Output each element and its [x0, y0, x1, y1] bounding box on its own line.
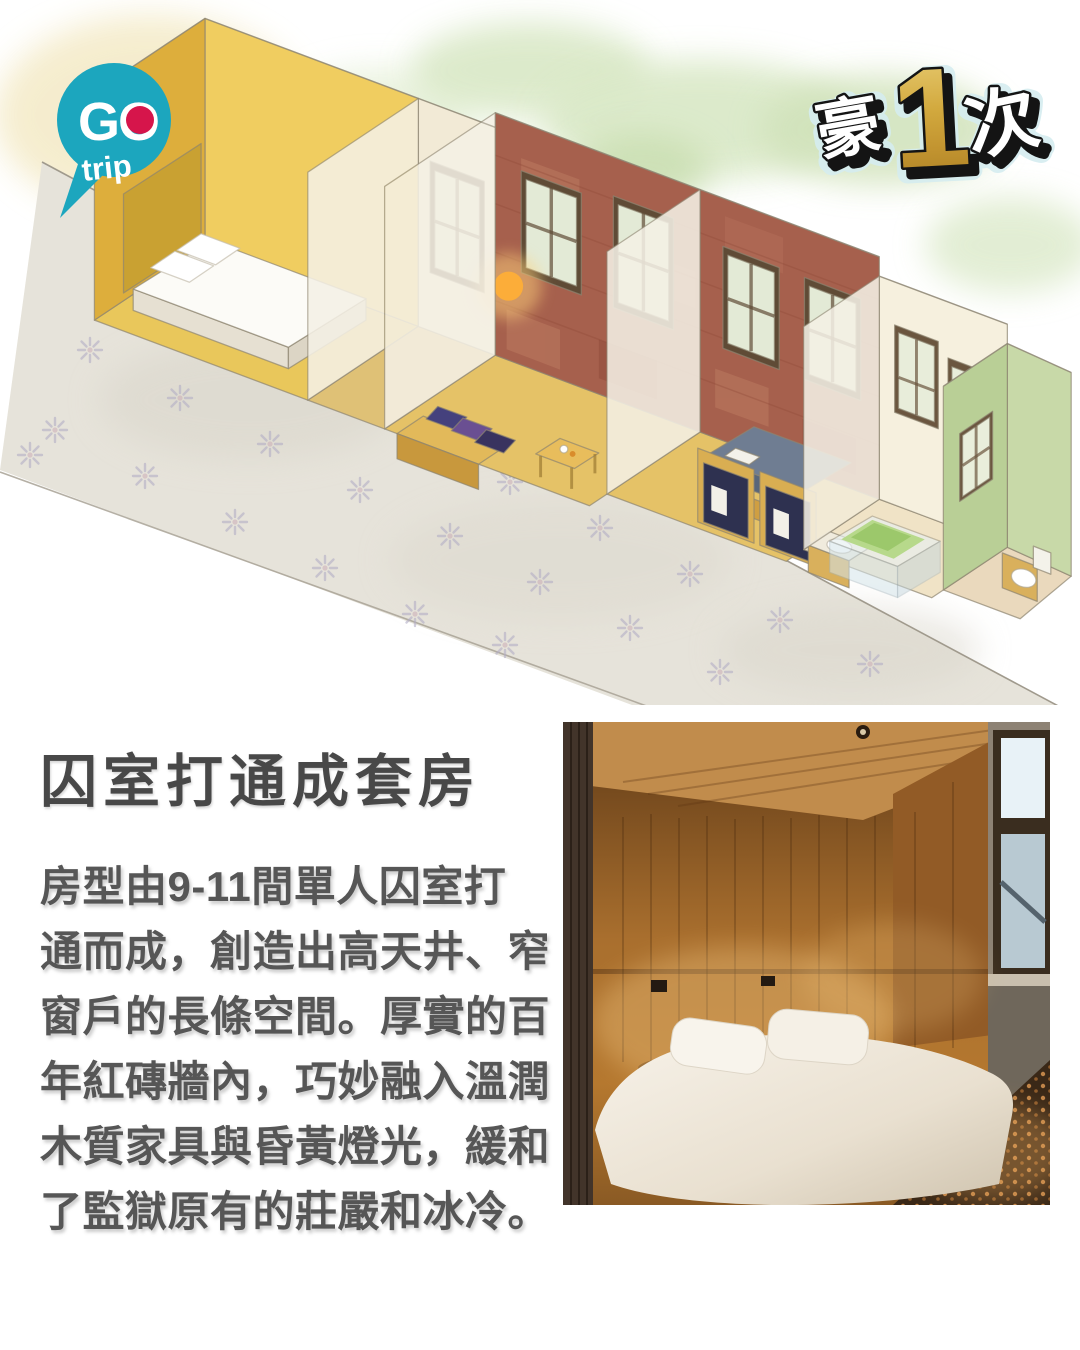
body-text-line: 木質家具與昏黃燈光，緩和: [40, 1114, 560, 1179]
body-text-line: 房型由9-11間單人囚室打: [40, 854, 560, 919]
body-text-line: 窗戶的長條空間。厚實的百: [40, 984, 560, 1049]
photo-pillow: [766, 1008, 870, 1067]
wall-switch: [761, 976, 775, 986]
illustrated-toilet-room: [943, 344, 1071, 619]
hao-1-ci-badge: 豪 1 次 豪 1 次 豪 1 次: [800, 48, 1060, 193]
logo-o-dot: [126, 106, 154, 134]
ceiling-light-inner: [860, 729, 866, 735]
body-text-line: 了監獄原有的莊嚴和冰冷。: [40, 1179, 560, 1244]
article-block: 囚室打通成套房 房型由9-11間單人囚室打 通而成，創造出高天井、窄 窗戶的長條…: [40, 710, 560, 1244]
page-title: 囚室打通成套房: [40, 748, 560, 816]
body-text-line: 通而成，創造出高天井、窄: [40, 919, 560, 984]
gotrip-logo: GO trip: [36, 56, 186, 226]
badge-char-number: 1: [888, 48, 974, 193]
logo-text-trip: trip: [80, 148, 133, 188]
body-text: 房型由9-11間單人囚室打 通而成，創造出高天井、窄 窗戶的長條空間。厚實的百 …: [40, 854, 560, 1244]
photo-window: [988, 730, 1050, 986]
badge-char-left: 豪: [810, 87, 886, 169]
body-text-line: 年紅磚牆內，巧妙融入溫潤: [40, 1049, 560, 1114]
social-post-page: GO trip 豪 1 次 豪 1 次 豪 1 次: [0, 0, 1080, 1350]
wall-switch: [651, 980, 667, 992]
room-photo: [563, 722, 1050, 1205]
